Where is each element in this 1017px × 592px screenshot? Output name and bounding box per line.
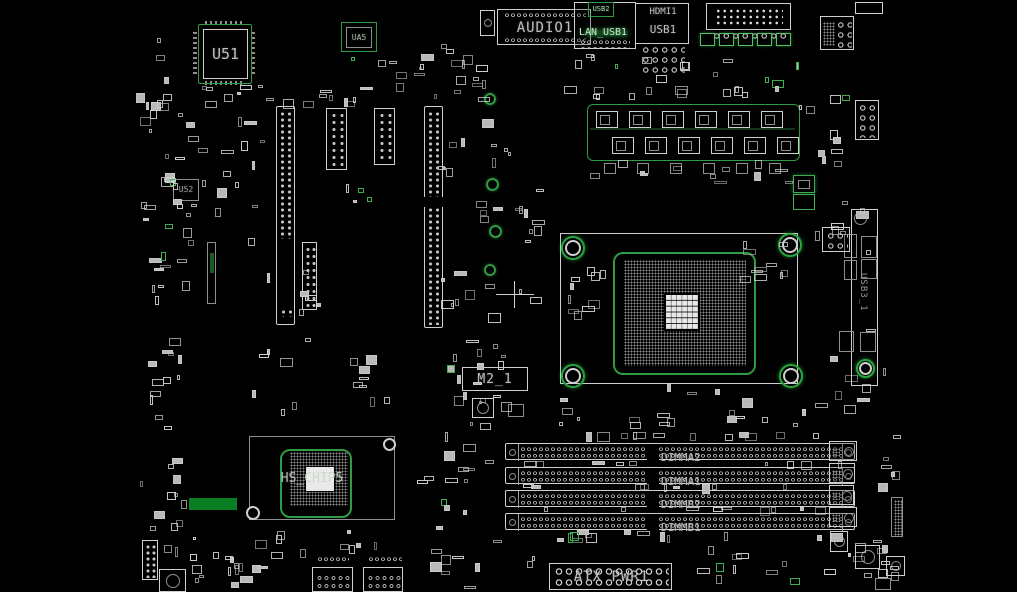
passive-component (559, 422, 563, 426)
passive-component (776, 432, 785, 439)
pcie-slot-1[interactable] (276, 106, 295, 325)
passive-component (519, 206, 523, 214)
passive-component (158, 285, 164, 288)
passive-component (244, 121, 257, 125)
passive-component (320, 90, 332, 93)
passive-component (458, 467, 469, 472)
lan-usb-label: LAN_USB1 (579, 28, 627, 38)
passive-component (317, 303, 321, 307)
slot-key (647, 469, 659, 484)
passive-component (755, 160, 762, 169)
passive-component (165, 154, 169, 159)
crosshair-mark (496, 294, 534, 295)
passive-component (830, 95, 841, 104)
passive-component (237, 92, 241, 95)
passive-component (199, 575, 204, 578)
front-panel-header[interactable] (363, 567, 403, 592)
passive-component (445, 432, 448, 442)
passive-component (449, 142, 457, 148)
passive-component (653, 433, 665, 438)
passive-component (453, 354, 457, 362)
passive-component (838, 461, 842, 469)
passive-component (877, 548, 887, 554)
passive-component (470, 422, 473, 426)
passive-component (790, 578, 800, 585)
passive-component (231, 582, 239, 588)
edge-connector (207, 242, 216, 304)
mosfet (793, 175, 815, 193)
pin-ticks (193, 32, 197, 76)
passive-component (239, 563, 243, 572)
passive-component (640, 484, 649, 490)
passive-component (396, 83, 404, 92)
hdmi-usb-connector[interactable]: HDMI1 USB1 (635, 3, 689, 44)
mosfet (678, 137, 700, 154)
sata-port[interactable] (829, 507, 857, 527)
passive-component (445, 478, 458, 483)
passive-component (682, 62, 689, 70)
passive-component (878, 569, 888, 578)
passive-component (178, 113, 183, 117)
passive-component (173, 183, 178, 190)
usb1-label: USB1 (650, 24, 677, 35)
passive-component (800, 507, 804, 511)
passive-component (842, 95, 850, 101)
passive-component (586, 432, 592, 442)
passive-component (359, 385, 367, 388)
passive-component (351, 57, 355, 61)
passive-component (715, 389, 720, 395)
mount-hole (783, 368, 799, 384)
dimm-label: DIMMA2 (661, 451, 701, 464)
passive-component (830, 356, 838, 362)
passive-component (724, 532, 728, 541)
passive-component (473, 77, 479, 81)
passive-component (477, 349, 482, 357)
passive-component (881, 561, 890, 565)
passive-component (157, 100, 163, 108)
mosfet (629, 111, 651, 128)
passive-component (441, 300, 454, 309)
passive-component (806, 106, 815, 114)
slot-key (647, 515, 659, 530)
passive-component (740, 276, 751, 283)
passive-component (350, 358, 358, 366)
passive-component (182, 281, 190, 291)
capacitor (700, 33, 715, 46)
passive-component (890, 566, 899, 570)
mosfet (596, 111, 618, 128)
mosfet (711, 137, 733, 154)
mount-hole (383, 438, 396, 451)
passive-component (771, 507, 776, 513)
passive-component (473, 382, 482, 385)
passive-component (259, 354, 269, 358)
passive-component (785, 181, 793, 184)
passive-component (616, 462, 624, 466)
usb3-header[interactable]: USB3_1 (851, 209, 878, 386)
passive-component (175, 547, 178, 557)
passive-component (235, 182, 239, 188)
passive-component (618, 160, 628, 168)
passive-component (775, 169, 788, 172)
mosfet (645, 137, 667, 154)
passive-component (438, 166, 445, 170)
passive-component (586, 54, 594, 58)
slot-key (424, 197, 443, 207)
passive-component (192, 565, 202, 574)
passive-component (430, 562, 442, 572)
passive-component (702, 484, 710, 494)
passive-component (775, 86, 779, 92)
passive-component (221, 150, 234, 154)
passive-component (155, 415, 163, 420)
rear-io-jack (480, 10, 495, 36)
passive-component (305, 338, 311, 342)
mount-hole (565, 240, 581, 256)
passive-component (378, 60, 386, 67)
capacitor (757, 33, 772, 46)
passive-component (224, 94, 233, 102)
usb2-port[interactable]: USB2 (588, 2, 614, 17)
passive-component (463, 510, 467, 515)
passive-component (754, 274, 767, 281)
passive-component (292, 402, 297, 410)
mosfet (728, 111, 750, 128)
passive-component (835, 391, 842, 400)
passive-component (834, 161, 842, 167)
passive-component (577, 417, 580, 421)
passive-component (225, 556, 233, 560)
passive-component (389, 61, 397, 64)
passive-component (873, 540, 882, 543)
passive-component (766, 570, 778, 575)
passive-component (165, 224, 173, 229)
passive-component (454, 271, 467, 276)
passive-component (508, 152, 511, 156)
passive-component (472, 83, 483, 87)
passive-component (154, 511, 165, 519)
pin-header[interactable] (142, 540, 158, 580)
passive-component (864, 573, 872, 578)
passive-component (419, 67, 422, 70)
passive-component (657, 413, 670, 418)
chip-u51-label: U51 (212, 47, 239, 62)
passive-component (624, 530, 631, 535)
passive-component (793, 423, 798, 427)
passive-component (544, 507, 548, 512)
passive-component (714, 181, 727, 184)
passive-component (155, 296, 159, 305)
passive-component (240, 85, 252, 90)
pin-holes (368, 556, 402, 564)
mosfet (604, 163, 616, 174)
passive-component (690, 433, 696, 441)
passive-component (136, 93, 145, 103)
passive-component (463, 444, 476, 452)
boardview-canvas[interactable]: U51 UA5 U52 AUDIO1 USB2 LAN_USB1 HDMI1 U… (0, 0, 1017, 592)
passive-component (637, 531, 650, 536)
passive-component (168, 464, 174, 469)
passive-component (673, 166, 682, 171)
passive-component (436, 526, 443, 530)
passive-component (260, 140, 265, 143)
passive-component (815, 403, 828, 408)
passive-component (488, 313, 501, 323)
passive-component (163, 377, 171, 384)
passive-component (557, 538, 564, 542)
passive-component (575, 60, 582, 69)
passive-component (708, 546, 714, 555)
passive-component (840, 231, 846, 235)
front-panel-header[interactable] (312, 567, 353, 592)
passive-component (527, 561, 533, 568)
passive-component (477, 363, 484, 370)
passive-component (734, 87, 743, 96)
passive-component (466, 340, 479, 343)
passive-component (161, 252, 166, 261)
passive-component (213, 552, 219, 559)
passive-component (340, 544, 349, 550)
passive-component (188, 136, 199, 142)
passive-component (463, 392, 467, 400)
passive-component (765, 462, 768, 466)
passive-component (169, 338, 181, 346)
mosfet (761, 111, 783, 128)
green-trace (590, 128, 795, 130)
passive-component (667, 384, 671, 392)
passive-component (173, 199, 182, 205)
passive-component (862, 384, 871, 393)
passive-component (164, 178, 176, 182)
chip-u51[interactable]: U51 (203, 29, 248, 79)
passive-component (479, 401, 482, 404)
passive-component (845, 375, 858, 382)
buzzer (159, 569, 186, 592)
passive-component (186, 122, 195, 128)
passive-component (594, 87, 604, 94)
pin-header[interactable] (374, 108, 395, 165)
dimm-label: DIMMB1 (661, 521, 701, 534)
passive-component (396, 72, 407, 79)
passive-component (588, 300, 600, 309)
passive-component (163, 94, 172, 101)
pin-header[interactable] (326, 108, 347, 170)
m2-connector[interactable]: M2_1 (462, 367, 528, 391)
atx-power-connector[interactable]: ATX PWR1 (549, 563, 672, 590)
passive-component (359, 366, 370, 374)
passive-component (172, 458, 183, 464)
passive-component (642, 57, 652, 64)
mosfet (744, 137, 766, 154)
dimm-slot-3[interactable]: DIMMB2 (505, 490, 855, 507)
passive-component (205, 101, 217, 108)
sata-port[interactable] (829, 441, 857, 461)
mosfet (777, 137, 799, 154)
passive-component (464, 479, 468, 483)
passive-component (848, 553, 851, 557)
passive-component (152, 285, 155, 293)
passive-component (482, 119, 494, 128)
passive-component (257, 566, 268, 569)
passive-component (140, 117, 151, 126)
passive-component (480, 216, 489, 223)
sata-port[interactable] (829, 485, 854, 505)
passive-component (271, 552, 283, 559)
passive-component (762, 417, 768, 423)
passive-component (853, 556, 865, 562)
passive-component (299, 309, 304, 316)
passive-component (146, 102, 149, 110)
passive-component (712, 484, 717, 490)
passive-component (452, 556, 464, 559)
passive-component (491, 144, 497, 147)
passive-component (831, 149, 843, 154)
test-point (486, 178, 499, 191)
passive-component (667, 418, 675, 427)
passive-component (630, 422, 641, 429)
passive-component (891, 572, 899, 581)
passive-component (656, 75, 667, 83)
passive-component (866, 250, 871, 255)
passive-component (587, 267, 595, 276)
passive-component (529, 229, 533, 234)
passive-component (818, 150, 825, 157)
passive-component (252, 390, 256, 398)
passive-component (677, 89, 687, 98)
passive-component (454, 90, 461, 94)
passive-component (667, 535, 670, 543)
test-point (484, 264, 496, 276)
chip-u52-label: U52 (179, 186, 193, 194)
passive-component (815, 231, 820, 241)
passive-component (570, 283, 574, 290)
atx-power-label: ATX PWR1 (574, 570, 649, 584)
passive-component (446, 168, 453, 177)
passive-component (716, 563, 724, 572)
passive-component (743, 249, 756, 255)
passive-component (252, 161, 255, 170)
passive-component (713, 507, 723, 512)
passive-component (883, 457, 889, 461)
green-fill-zone (189, 498, 237, 510)
passive-component (167, 492, 176, 500)
pin-holes (280, 309, 293, 317)
passive-component (171, 523, 178, 531)
passive-component (305, 295, 317, 301)
passive-component (177, 375, 180, 380)
passive-component (300, 549, 306, 558)
passive-component (164, 77, 169, 84)
pin-field (715, 8, 783, 25)
passive-component (228, 567, 231, 576)
corner-connector (855, 2, 883, 14)
passive-component (710, 174, 716, 179)
passive-component (206, 87, 213, 91)
passive-component (370, 397, 375, 407)
passive-component (801, 461, 812, 470)
mosfet (793, 194, 815, 210)
passive-component (478, 97, 490, 102)
passive-component (441, 278, 445, 282)
usb2-label: USB2 (593, 6, 610, 13)
passive-component (822, 156, 826, 164)
power-connector (855, 100, 879, 140)
passive-component (536, 189, 544, 192)
mount-hole (246, 506, 260, 520)
dimm-slot-1[interactable]: DIMMA2 (505, 443, 855, 460)
passive-component (476, 201, 487, 208)
passive-component (493, 540, 502, 543)
passive-component (621, 433, 628, 439)
passive-component (893, 435, 901, 439)
passive-component (414, 73, 425, 76)
passive-component (178, 355, 182, 364)
passive-component (815, 507, 826, 515)
passive-component (783, 484, 787, 490)
passive-component (417, 480, 428, 484)
passive-component (149, 129, 152, 133)
passive-component (252, 205, 258, 208)
passive-component (150, 110, 157, 119)
passive-component (283, 99, 294, 109)
passive-component (346, 184, 349, 193)
pin-header (891, 497, 903, 537)
passive-component (384, 397, 390, 404)
capacitor (738, 33, 753, 46)
mosfet (736, 163, 748, 174)
sata-port[interactable] (829, 463, 855, 483)
passive-component (195, 578, 199, 583)
passive-component (143, 218, 149, 221)
passive-component (186, 213, 191, 217)
passive-component (248, 238, 255, 246)
passive-component (444, 505, 450, 511)
passive-component (766, 263, 777, 267)
passive-component (727, 416, 737, 423)
passive-component (215, 208, 221, 217)
passive-component (633, 432, 637, 440)
passive-component (519, 289, 522, 294)
passive-component (202, 180, 206, 187)
passive-component (492, 158, 496, 168)
dimm-slot-4[interactable]: DIMMB1 (505, 513, 855, 530)
pcie-slot-2[interactable] (424, 106, 443, 328)
passive-component (235, 565, 239, 575)
passive-component (444, 451, 455, 461)
passive-component (456, 76, 466, 85)
passive-component (140, 481, 143, 487)
chip-ua5[interactable]: UA5 (346, 27, 372, 48)
passive-component (374, 542, 377, 550)
passive-component (883, 368, 886, 376)
passive-component (716, 575, 722, 584)
passive-component (493, 395, 501, 398)
passive-component (464, 586, 476, 589)
passive-component (367, 197, 372, 202)
slot-key (647, 445, 659, 460)
passive-component (590, 173, 600, 179)
passive-component (162, 350, 173, 354)
passive-component (485, 284, 495, 289)
passive-component (592, 461, 605, 465)
passive-component (480, 423, 491, 430)
passive-component (347, 530, 351, 534)
passive-component (446, 49, 454, 54)
socket-center (664, 293, 700, 331)
passive-component (150, 526, 156, 531)
dvi-connector[interactable] (706, 3, 791, 30)
